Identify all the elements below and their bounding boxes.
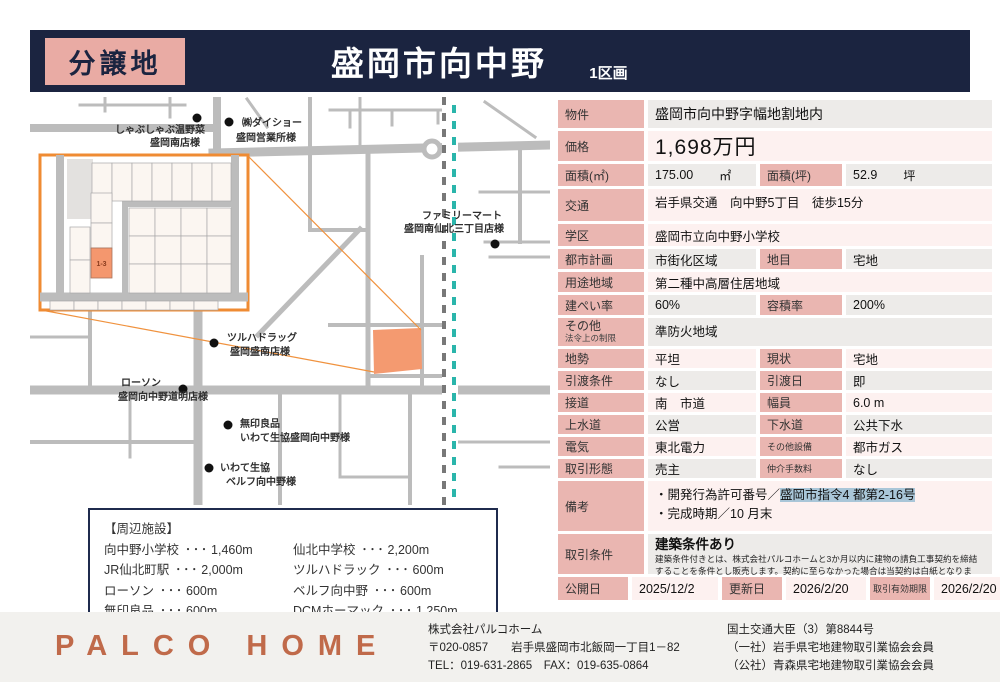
facilities-right-column: 仙北中学校・・・2,200m ツルハドラック・・・600m ベルフ向中野・・・6… <box>293 540 482 621</box>
facility-item: ベルフ向中野・・・600m <box>293 581 482 601</box>
company-logo: PALCO HOME <box>55 630 389 663</box>
poi-label: 無印良品 <box>240 417 280 430</box>
row-school-district: 学区 盛岡市立向中野小学校 <box>558 224 992 246</box>
flyer-page: 分譲地 盛岡市向中野 1区画 <box>0 0 1000 682</box>
property-table: 物件 盛岡市向中野字幅地割地内 価格 1,698万円 面積(㎡) 175.00㎡… <box>558 100 992 600</box>
row-terrain: 地勢 平坦 現状 宅地 <box>558 349 992 368</box>
company-contact-block: 株式会社パルコホーム 〒020-0857 岩手県盛岡市北飯岡一丁目1－82 TE… <box>428 622 680 675</box>
company-name: 株式会社パルコホーム <box>428 622 680 640</box>
conditions-value: 建築条件あり <box>655 537 736 553</box>
poi-label: いわて生協盛岡向中野様 <box>240 431 351 444</box>
sale-type-badge: 分譲地 <box>45 38 185 85</box>
poi-label: 盛岡南店様 <box>150 136 201 149</box>
row-water: 上水道 公営 下水道 公共下水 <box>558 415 992 434</box>
remarks-line2: ・完成時期／10 月末 <box>655 505 772 524</box>
facilities-left-column: 向中野小学校・・・1,460m JR仙北町駅・・・2,000m ローソン・・・6… <box>104 540 293 621</box>
title-bar: 分譲地 盛岡市向中野 1区画 <box>30 30 970 92</box>
subdivision-inset: 1-3 <box>40 155 248 310</box>
poi-label: ファミリーマート <box>422 210 502 222</box>
row-dates: 公開日 2025/12/2 更新日 2026/2/20 取引有効期限 2026/… <box>558 577 992 600</box>
permit-number-highlight: 盛岡市指令4 都第2‐16号 <box>780 488 915 502</box>
poi-label: 盛岡南仙北三丁目店様 <box>404 222 505 235</box>
company-telfax: TEL：019-631-2865 FAX：019-635-0864 <box>428 658 680 676</box>
row-transit: 交通 岩手県交通 向中野5丁目 徒歩15分 <box>558 189 992 221</box>
facility-item: 向中野小学校・・・1,460m <box>104 540 293 560</box>
row-transaction-type: 取引形態 売主 仲介手数料 なし <box>558 459 992 478</box>
poi-label: いわて生協 <box>220 461 270 474</box>
row-handover-conditions: 引渡条件 なし 引渡日 即 <box>558 371 992 390</box>
poi-label: 盛岡盛南店様 <box>230 345 291 358</box>
facilities-title: 【周辺施設】 <box>104 518 482 537</box>
membership-1: （一社）岩手県宅地建物取引業協会会員 <box>727 640 934 658</box>
facility-item: JR仙北町駅・・・2,000m <box>104 560 293 580</box>
poi-label: 盛岡向中野道明店様 <box>118 390 209 403</box>
remarks-line1: ・開発行為許可番号／盛岡市指令4 都第2‐16号 <box>655 486 915 505</box>
facility-item: ツルハドラック・・・600m <box>293 560 482 580</box>
footer: PALCO HOME 株式会社パルコホーム 〒020-0857 岩手県盛岡市北飯… <box>0 612 1000 682</box>
poi-label: しゃぶしゃぶ温野菜 <box>115 123 206 136</box>
row-property: 物件 盛岡市向中野字幅地割地内 <box>558 100 992 128</box>
row-road-access: 接道 南 市道 幅員 6.0 m <box>558 393 992 412</box>
row-city-planning: 都市計画 市街化区域 地目 宅地 <box>558 249 992 269</box>
poi-label: 盛岡営業所様 <box>236 131 297 144</box>
facility-item: ローソン・・・600m <box>104 581 293 601</box>
membership-2: （公社）青森県宅地建物取引業協会会員 <box>727 658 934 676</box>
row-remarks: 備考 ・開発行為許可番号／盛岡市指令4 都第2‐16号 ・完成時期／10 月末 <box>558 481 992 531</box>
facility-item: 仙北中学校・・・2,200m <box>293 540 482 560</box>
highlighted-lot-label: 1-3 <box>96 261 106 268</box>
company-address: 〒020-0857 岩手県盛岡市北飯岡一丁目1－82 <box>428 640 680 658</box>
row-price: 価格 1,698万円 <box>558 131 992 161</box>
row-other-restrictions: その他 法令上の制限 準防火地域 <box>558 318 992 346</box>
lot-count: 1区画 <box>589 62 627 83</box>
poi-label: ㈱ダイショー <box>242 116 302 129</box>
row-zoning: 用途地域 第二種中高層住居地域 <box>558 272 992 292</box>
site-parcel <box>373 328 422 374</box>
company-license-block: 国土交通大臣（3）第8844号 （一社）岩手県宅地建物取引業協会会員 （公社）青… <box>727 622 934 675</box>
poi-label: ツルハドラッグ <box>227 331 297 344</box>
row-coverage-ratio: 建ぺい率 60% 容積率 200% <box>558 295 992 315</box>
poi-label: ベルフ向中野様 <box>226 475 297 488</box>
row-area: 面積(㎡) 175.00㎡ 面積(坪) 52.9坪 <box>558 164 992 186</box>
page-title: 盛岡市向中野 <box>331 37 547 85</box>
poi-label: ローソン <box>121 378 161 389</box>
railway-line <box>444 97 454 505</box>
row-transaction-conditions: 取引条件 建築条件あり 建築条件付きとは、株式会社パルコホームと3か月以内に建物… <box>558 534 992 574</box>
roundabout <box>424 141 440 157</box>
license-number: 国土交通大臣（3）第8844号 <box>727 622 934 640</box>
area-map: 1-3 しゃぶしゃぶ温野菜 盛岡南店様 ㈱ダイショー 盛岡営業所様 ファミリーマ… <box>30 97 550 505</box>
row-electricity: 電気 東北電力 その他設備 都市ガス <box>558 437 992 456</box>
nearby-facilities-box: 【周辺施設】 向中野小学校・・・1,460m JR仙北町駅・・・2,000m ロ… <box>88 508 498 616</box>
